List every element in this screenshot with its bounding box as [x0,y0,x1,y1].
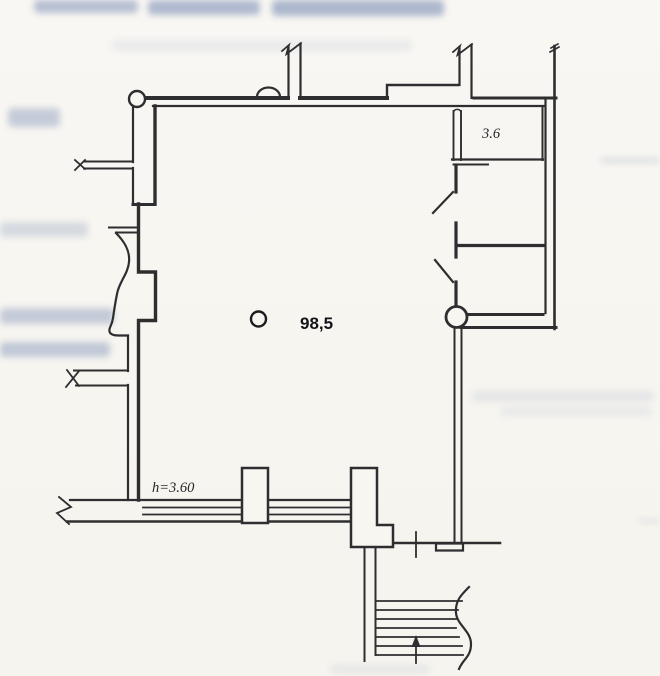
scanned-floor-plan-page: 98,5 3.6 h=3.60 [0,0,660,676]
top-outer-wall [136,85,556,106]
main-area-label: 98,5 [300,314,333,333]
wall-bump [257,88,280,98]
room-number-circle-marker [251,312,266,327]
break-symbol [66,370,79,387]
wall-protrusion-2 [453,44,472,98]
bottom-right-wall [461,315,556,328]
break-symbol [453,44,472,55]
stair-break-line [456,587,471,669]
pier-column-1 [242,468,268,523]
round-column [446,307,467,328]
break-symbol [282,43,301,54]
door-leaf-2 [435,260,453,282]
floor-plan-drawing: 98,5 3.6 h=3.60 [0,0,660,676]
corner-column-cap [129,91,145,107]
right-wall [546,44,560,329]
break-symbol [75,160,85,170]
wall-protrusion-1 [282,43,301,97]
interior-wall-with-doors [433,165,544,306]
curved-wall-line [109,233,129,336]
bottom-wall [57,497,351,524]
small-room-area-label: 3.6 [481,126,501,142]
stairs [365,549,472,669]
ceiling-height-label: h=3.60 [152,480,195,496]
lower-interior-wall [436,328,463,551]
left-wall [66,106,156,500]
pier-column-2 [351,468,393,547]
door-leaf-1 [433,192,453,213]
wall-foot [436,544,463,551]
